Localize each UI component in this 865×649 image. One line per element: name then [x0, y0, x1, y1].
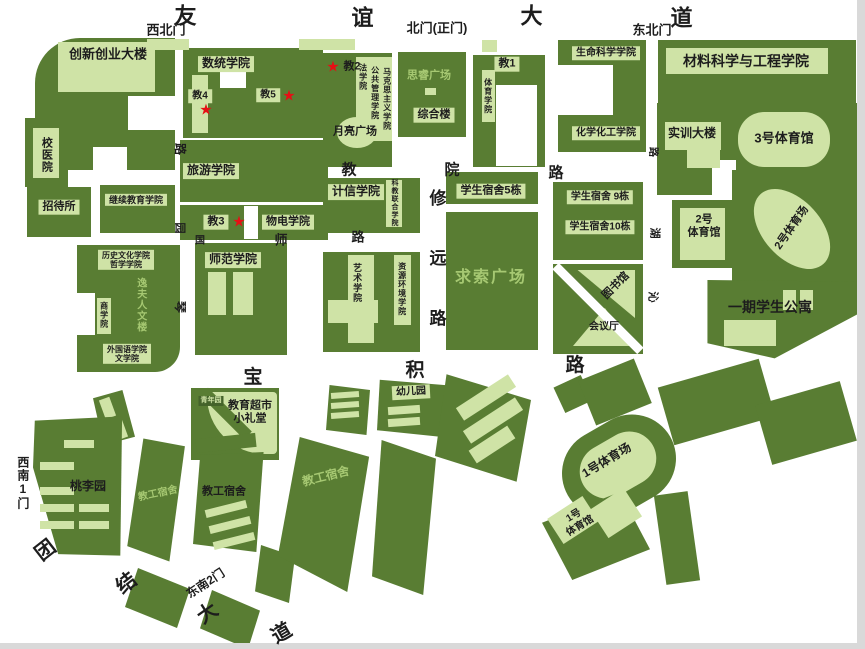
building-light-area: [328, 300, 378, 323]
road-baoji-char-1: 宝: [243, 367, 262, 389]
road-qinyuan-char-1: 路: [172, 143, 186, 155]
building-sushe5: 学生宿舍5栋: [456, 184, 525, 199]
road-guoshi-char-3: 路: [351, 231, 364, 246]
road-qinyuan-char-3: 琴: [172, 301, 186, 313]
building-shixundalou: 实训大楼: [668, 127, 716, 141]
courtyard-gap: [220, 70, 246, 88]
building-sushe10: 学生宿舍10栋: [565, 220, 634, 234]
road-youyi-char-2: 谊: [351, 5, 374, 30]
building-shifan: 师范学院: [205, 252, 261, 268]
building-huiyiting: 会议厅: [589, 321, 619, 333]
building-light-area: [687, 150, 720, 168]
building-huaxuehuagong: 化学化工学院: [572, 126, 640, 140]
building-yiqigongyu: 一期学生公寓: [728, 299, 812, 315]
road-xiuyuan-char-2: 远: [430, 249, 447, 269]
building-kejiaolianhe: 科教联合学院: [390, 179, 398, 227]
building-block: [100, 185, 175, 233]
building-light-area: [724, 320, 776, 346]
courtyard-gap: [128, 96, 175, 130]
road-jiaoyuan-char-2: 院: [444, 161, 459, 178]
building-block: [694, 280, 862, 360]
star-jiao5: ★: [282, 87, 295, 104]
building-light-area: [208, 272, 226, 315]
building-ziyuanhuanjing: 资源环境学院: [397, 262, 406, 316]
building-lishiwenhua: 历史文化学院 哲学学院: [98, 250, 154, 270]
building-jiao5: 教5: [256, 88, 280, 102]
courtyard-gap: [496, 85, 537, 166]
courtyard-gap: [558, 65, 613, 115]
campus-map: 友谊大道西北门北门(正门)东北门西南1门东南2门教院路国师路路园琴修远路路湖沁宝…: [0, 0, 865, 649]
building-zonghelou: 综合楼: [414, 108, 455, 123]
road-guoshi-char-2: 师: [274, 234, 287, 249]
building-light-area: [79, 521, 109, 529]
star-jiao2: ★: [326, 58, 339, 75]
building-light-area: [79, 504, 109, 512]
building-jixin: 计信学院: [328, 184, 384, 200]
road-xiuyuan-char-1: 修: [430, 189, 447, 209]
building-tiyuxueyuan: 体育学院: [483, 78, 492, 114]
building-light-area: [40, 487, 74, 495]
road-qinyuan-char-2: 园: [173, 223, 186, 234]
courtyard-gap: [93, 147, 127, 170]
plaza-qiusuo: 求索广场: [455, 269, 527, 287]
road-qinhu-char-2: 湖: [648, 228, 661, 239]
road-xiuyuan-char-3: 路: [430, 309, 447, 329]
star-jiao4: ★: [199, 101, 212, 118]
building-light-area: [64, 440, 94, 448]
building-jiao1: 教1: [494, 57, 519, 72]
map-edge: [0, 643, 865, 649]
road-jiaoyuan-char-3: 路: [548, 164, 563, 181]
building-sushe9: 学生宿舍 9栋: [567, 190, 633, 204]
building-jiao3: 教3: [203, 215, 228, 230]
building-light-area: [40, 504, 74, 512]
building-gonggongguanli: 公共管理学院: [370, 66, 379, 120]
building-light-area: [425, 88, 436, 95]
building-yifurenwenlou: 逸夫人文楼: [134, 278, 146, 333]
building-lvyou: 旅游学院: [183, 163, 239, 179]
building-block: [654, 491, 700, 585]
building-light-area: [482, 40, 497, 52]
road-youyi-char-3: 大: [520, 3, 543, 28]
road-guoshi-char-1: 国: [195, 235, 205, 247]
building-wudian: 物电学院: [262, 215, 314, 230]
gate-northeast: 东北门: [632, 24, 671, 39]
building-makesizhuyi: 马克思主义学院: [382, 68, 391, 131]
building-block: [755, 381, 857, 465]
road-jiaoyuan-char-1: 教: [341, 161, 356, 178]
building-youeryuan: 幼儿园: [392, 384, 431, 399]
road-baoji-char-3: 路: [565, 355, 584, 377]
gate-southwest-1: 西南1门: [15, 456, 29, 510]
building-chuangxinchuangye: 创新创业大楼: [69, 48, 147, 63]
building-yishu: 艺术学院: [352, 263, 362, 303]
building-shengmingkexue: 生命科学学院: [572, 46, 640, 60]
building-waiguoyu: 外国语学院 文学院: [103, 344, 151, 364]
garden-taoliyuan: 桃李园: [70, 480, 106, 494]
building-block: [658, 359, 775, 446]
gate-north-main: 北门(正门): [407, 22, 468, 37]
building-light-area: [40, 462, 74, 470]
building-light-area: [40, 521, 74, 529]
building-jixujiaoyu: 继续教育学院: [105, 194, 167, 206]
building-faxueyuan: 法学院: [358, 64, 367, 91]
star-jiao3: ★: [232, 213, 245, 230]
building-cailiao: 材料科学与工程学院: [683, 53, 809, 69]
building-tiyuguan3: 3号体育馆: [754, 132, 813, 147]
road-qinhu-char-1: 路: [646, 147, 658, 157]
building-jiaoyuchaoshi: 教育超市 小礼堂: [228, 399, 272, 424]
road-qinhu-char-3: 沁: [646, 292, 659, 303]
garden-qingnianyuan: 青年园: [199, 396, 224, 406]
plaza-yueliang: 月亮广场: [333, 126, 377, 139]
courtyard-gap: [244, 206, 258, 239]
building-light-area: [233, 272, 253, 315]
courtyard-gap: [75, 293, 95, 335]
building-tiyuguan2: 2号 体育馆: [688, 213, 721, 238]
building-light-area: [299, 39, 355, 50]
building-block: [372, 440, 436, 595]
road-baoji-char-2: 积: [405, 360, 424, 382]
building-light-area: [147, 39, 189, 50]
building-shutong: 数统学院: [198, 56, 254, 72]
gate-northwest: 西北门: [146, 24, 185, 39]
road-youyi-char-4: 道: [670, 5, 693, 30]
plaza-sirui: 思睿广场: [407, 70, 451, 83]
map-edge: [857, 0, 865, 649]
building-shangxueyuan: 商学院: [99, 302, 108, 329]
building-zhaodaisuo: 招待所: [39, 200, 80, 215]
building-xiaoyiyuan: 校医院: [40, 137, 53, 173]
dorm-jiaogong-mid: 教工宿舍: [202, 486, 246, 499]
